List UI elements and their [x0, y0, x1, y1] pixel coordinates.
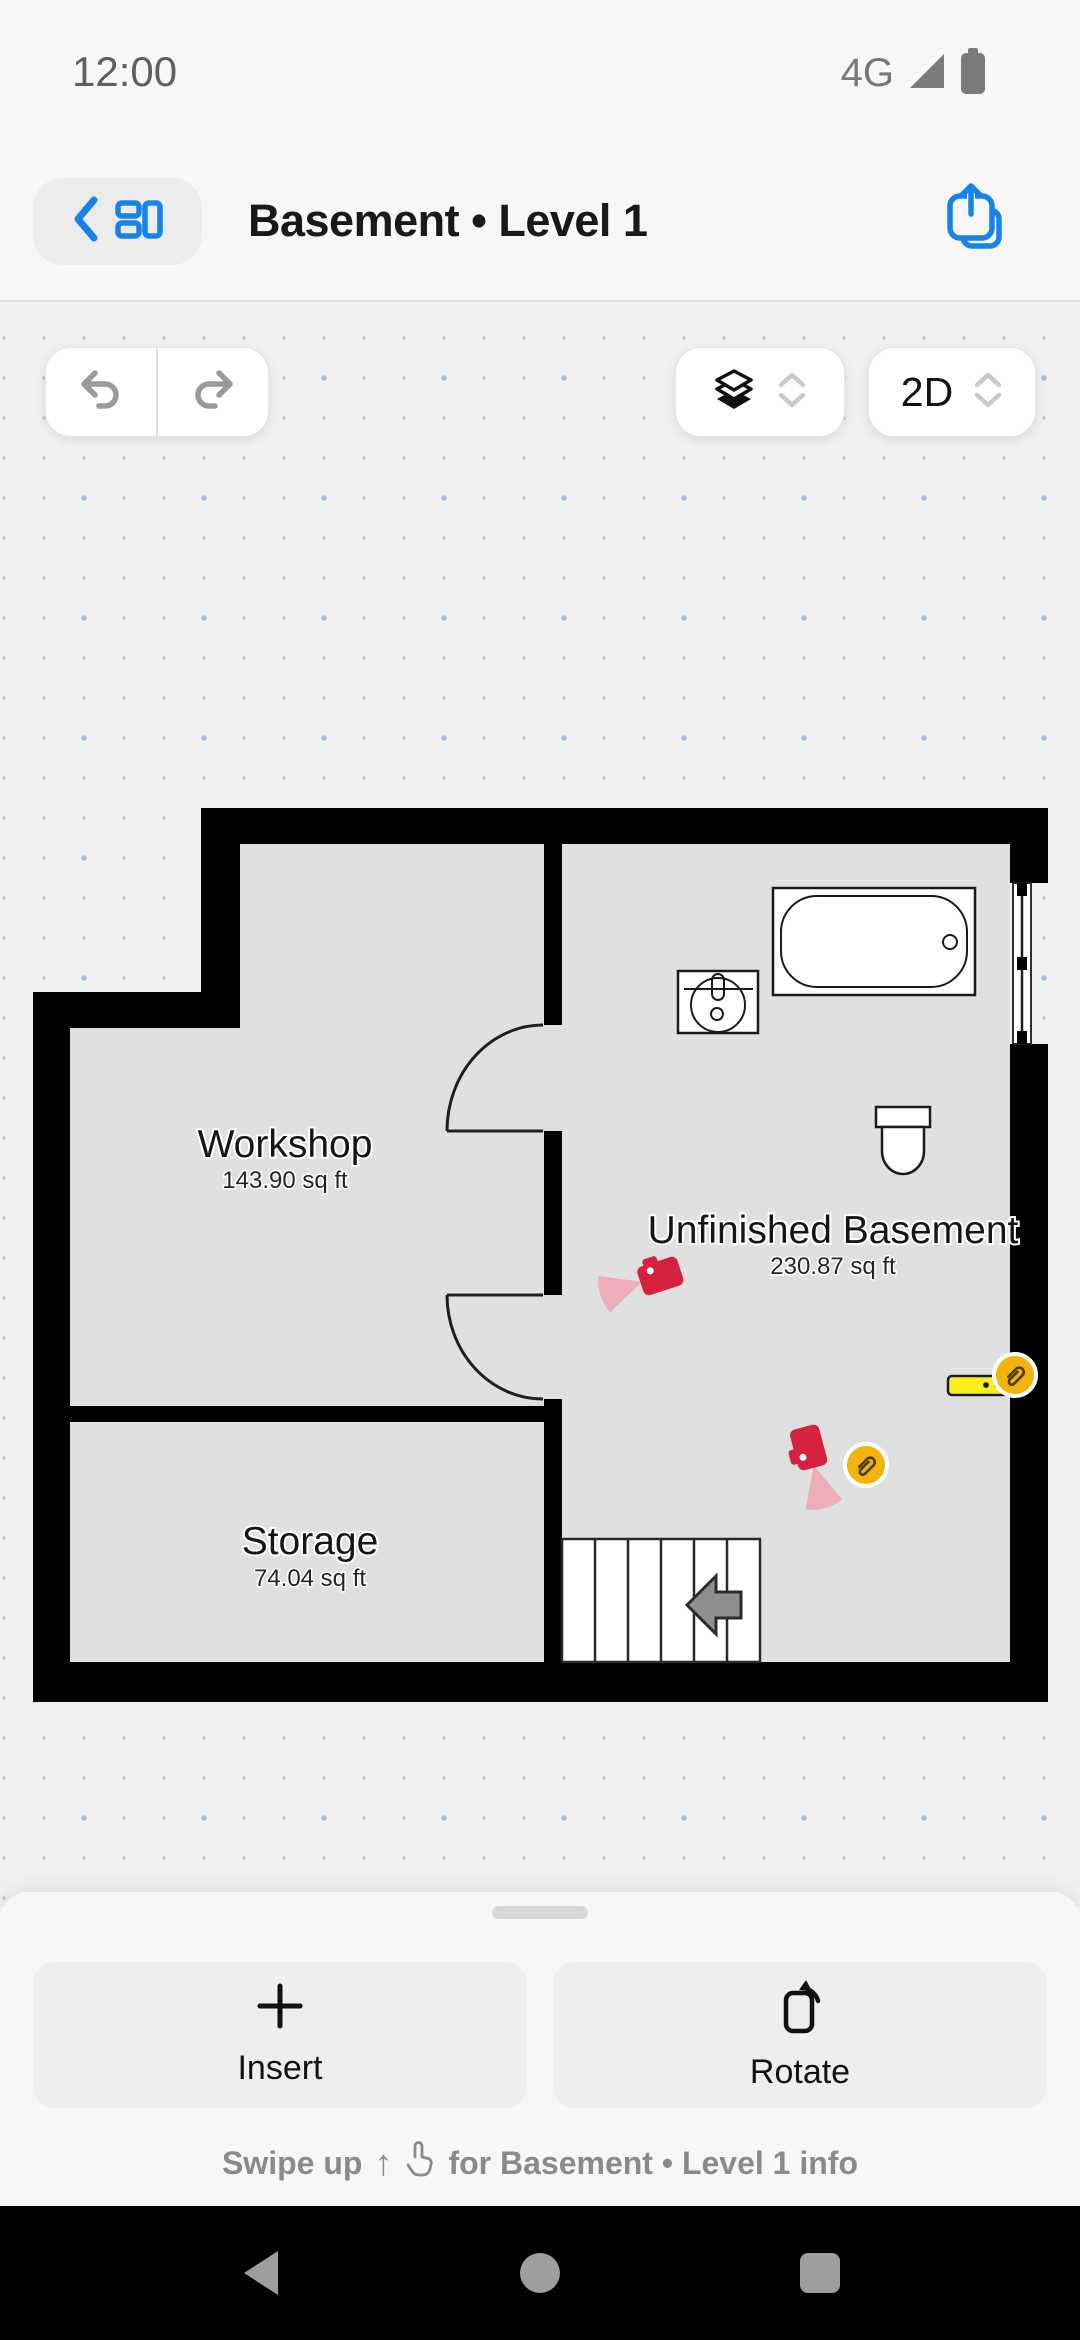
attachment-badge-2[interactable] — [845, 1444, 887, 1486]
nav-home-button[interactable] — [470, 2206, 610, 2340]
swipe-up-arrow-icon: ↑ — [374, 2142, 392, 2184]
undo-icon — [78, 366, 124, 419]
dashboard-icon[interactable] — [115, 196, 163, 247]
svg-text:230.87 sq ft: 230.87 sq ft — [770, 1253, 896, 1280]
layers-dropdown[interactable] — [675, 347, 845, 437]
view-mode-dropdown[interactable]: 2D — [868, 347, 1036, 437]
sheet-drag-handle[interactable] — [492, 1906, 588, 1919]
status-icons: 4G — [841, 48, 986, 99]
network-type-label: 4G — [841, 51, 894, 96]
swipe-hint-prefix: Swipe up — [222, 2145, 362, 2182]
view-mode-value: 2D — [901, 369, 953, 416]
svg-text:143.90 sq ft: 143.90 sq ft — [222, 1167, 348, 1194]
svg-text:74.04 sq ft: 74.04 sq ft — [254, 1565, 366, 1592]
bathtub[interactable] — [773, 888, 975, 995]
plan-canvas[interactable]: Workshop 143.90 sq ft Unfinished Basemen… — [0, 300, 1080, 1906]
nav-home-icon — [518, 2251, 562, 2295]
plus-icon — [256, 1982, 304, 2035]
nav-back-icon — [240, 2249, 280, 2297]
chevron-updown-icon — [973, 372, 1003, 413]
nav-recents-button[interactable] — [750, 2206, 890, 2340]
rotate-button[interactable]: Rotate — [553, 1962, 1047, 2108]
undo-redo-toolbar — [45, 347, 269, 437]
window[interactable] — [1013, 883, 1031, 1044]
nav-back-button[interactable] — [190, 2206, 330, 2340]
attachment-badge-1[interactable] — [994, 1354, 1036, 1396]
sink[interactable] — [678, 971, 758, 1033]
tap-hand-icon — [404, 2140, 436, 2186]
room-label-storage[interactable]: Storage 74.04 sq ft — [242, 1520, 379, 1592]
insert-button[interactable]: Insert — [33, 1962, 527, 2108]
redo-icon — [190, 366, 236, 419]
rotate-phone-icon — [772, 1978, 828, 2039]
battery-icon — [960, 48, 986, 99]
stairs[interactable] — [562, 1539, 760, 1662]
undo-button[interactable] — [46, 348, 156, 436]
back-and-plans-button[interactable] — [33, 178, 202, 265]
swipe-hint: Swipe up ↑ for Basement • Level 1 info — [0, 2140, 1080, 2186]
svg-text:Workshop: Workshop — [198, 1123, 373, 1166]
svg-text:Unfinished Basement: Unfinished Basement — [648, 1209, 1019, 1252]
insert-label: Insert — [237, 2049, 322, 2088]
swipe-hint-suffix: for Basement • Level 1 info — [448, 2145, 858, 2182]
page-title: Basement • Level 1 — [248, 195, 647, 247]
android-nav-bar — [0, 2206, 1080, 2340]
chevron-updown-icon — [777, 372, 807, 413]
nav-recents-icon — [798, 2251, 842, 2295]
svg-text:Storage: Storage — [242, 1520, 379, 1563]
room-label-workshop[interactable]: Workshop 143.90 sq ft — [198, 1123, 373, 1194]
rotate-label: Rotate — [750, 2053, 850, 2092]
share-button[interactable] — [941, 182, 1005, 256]
floor-plan: Workshop 143.90 sq ft Unfinished Basemen… — [0, 302, 1080, 1908]
back-chevron-icon[interactable] — [73, 195, 99, 248]
redo-button[interactable] — [156, 348, 268, 436]
signal-icon — [908, 52, 946, 95]
layers-icon — [713, 368, 755, 417]
status-time: 12:00 — [72, 48, 177, 96]
